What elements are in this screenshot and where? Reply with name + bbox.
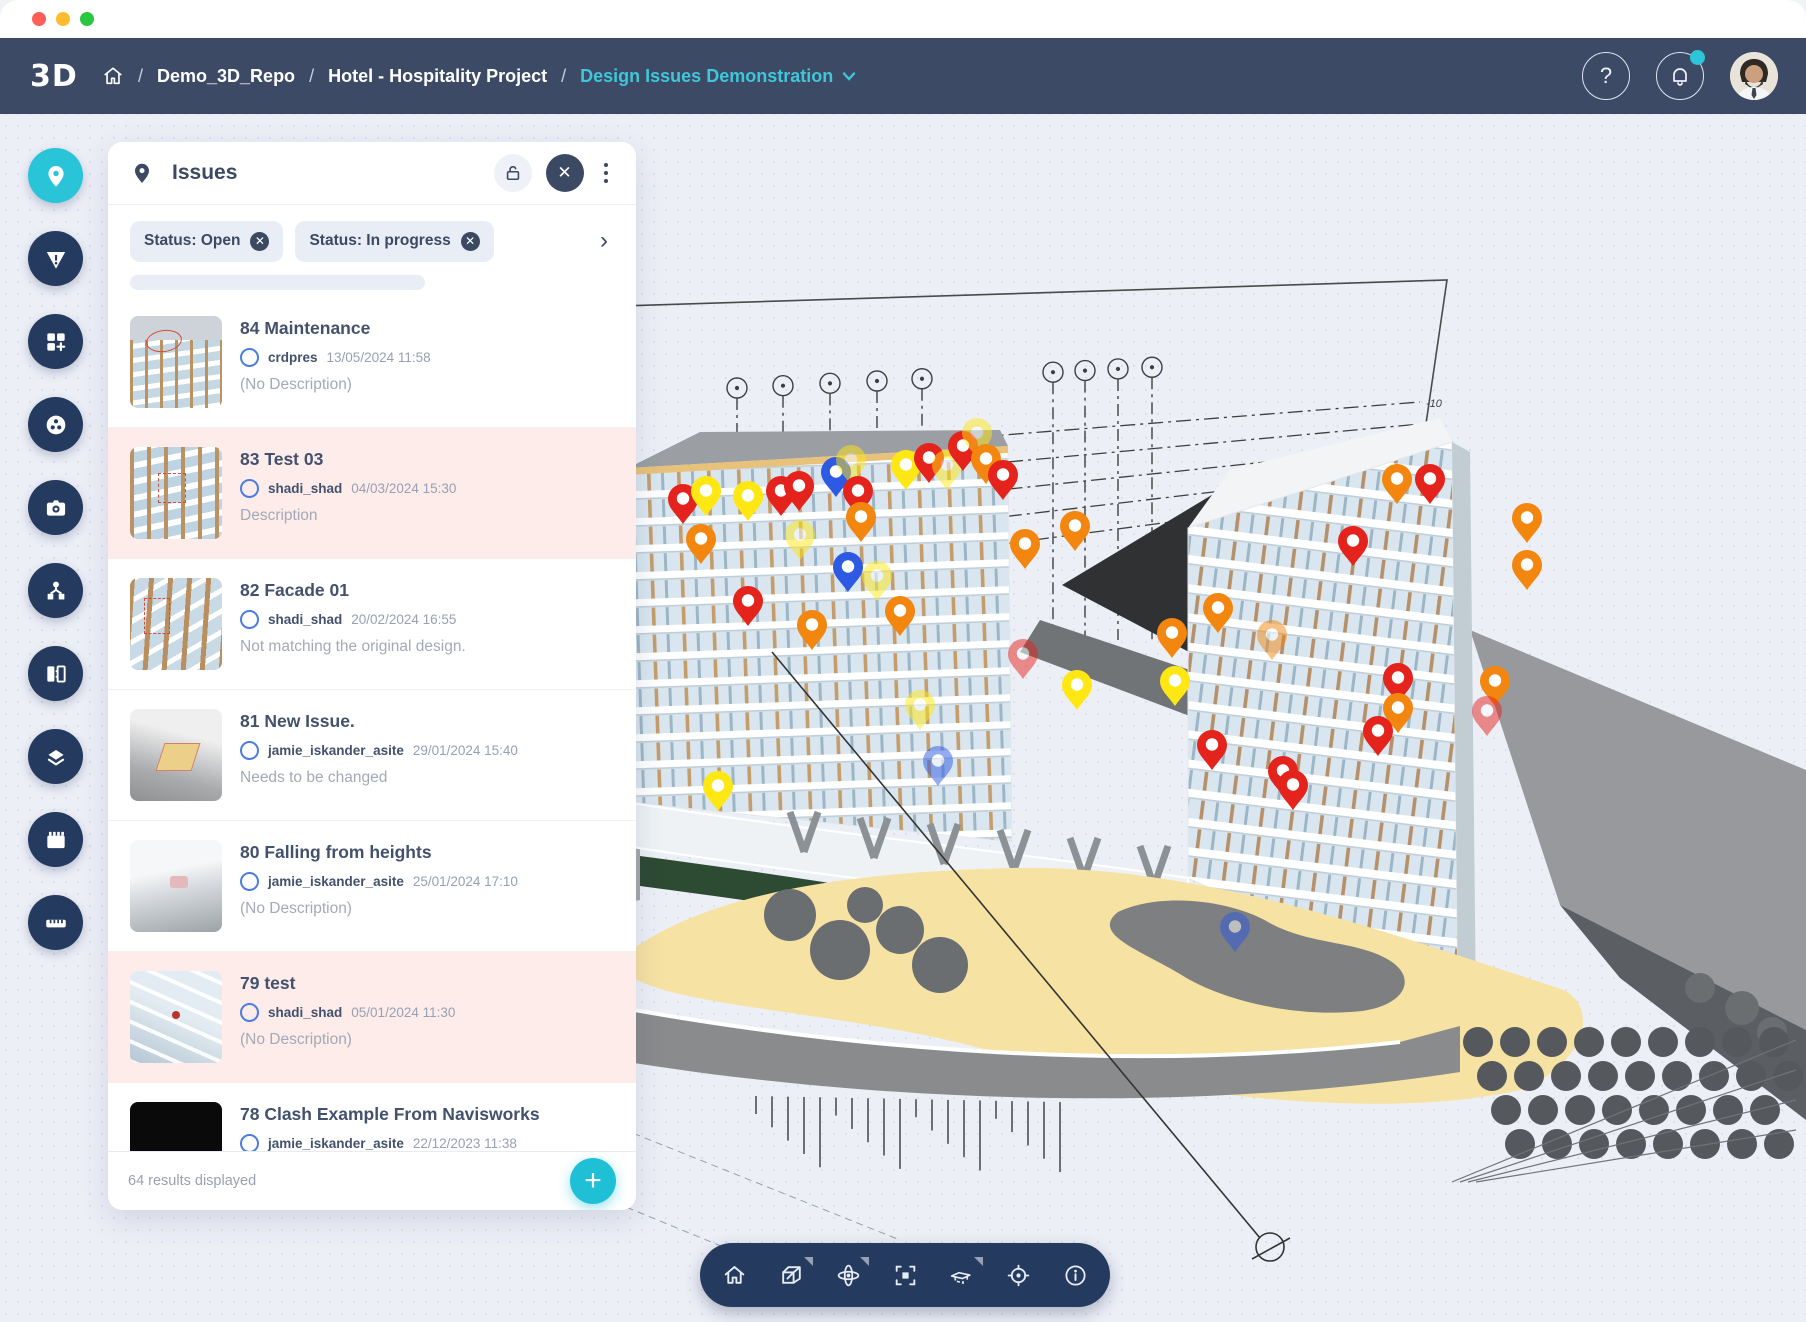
notification-badge — [1690, 50, 1705, 65]
filmstrip-icon — [43, 827, 69, 853]
issue-list-item[interactable]: 81 New Issue. jamie_iskander_asite 29/01… — [108, 690, 636, 821]
issue-date: 20/02/2024 16:55 — [351, 612, 456, 627]
issue-thumbnail — [130, 447, 222, 539]
warning-icon — [43, 246, 69, 272]
sidebar-item-sequences[interactable] — [28, 812, 83, 867]
issue-title: 79 test — [240, 973, 455, 994]
issue-title: 78 Clash Example From Navisworks — [240, 1104, 540, 1125]
issue-thumbnail — [130, 316, 222, 408]
issue-pin-orange[interactable] — [1060, 511, 1090, 551]
close-icon: ✕ — [557, 163, 571, 183]
remove-filter-icon[interactable]: ✕ — [250, 232, 269, 251]
status-ring-icon — [240, 1134, 259, 1151]
viewer-toolbar — [700, 1243, 1110, 1307]
issues-panel-header: Issues ✕ — [108, 142, 636, 205]
issue-list-item[interactable]: 84 Maintenance crdpres 13/05/2024 11:58 … — [108, 297, 636, 428]
pin-icon — [130, 161, 154, 185]
issue-title: 80 Falling from heights — [240, 842, 518, 863]
breadcrumb-separator: / — [561, 66, 566, 87]
status-ring-icon — [240, 610, 259, 629]
info-icon — [1062, 1262, 1089, 1289]
issue-description: Needs to be changed — [240, 769, 518, 787]
issue-title: 81 New Issue. — [240, 711, 518, 732]
issue-date: 25/01/2024 17:10 — [413, 874, 518, 889]
app-window: -10-20-30-40-50 — [0, 0, 1806, 1322]
chevron-down-icon — [841, 68, 857, 84]
viewer-tool-views[interactable] — [770, 1253, 814, 1297]
issue-description: Description — [240, 507, 456, 525]
issue-author: jamie_iskander_asite — [268, 874, 404, 889]
status-ring-icon — [240, 1003, 259, 1022]
issue-pin-orange[interactable] — [1512, 503, 1542, 543]
issue-date: 29/01/2024 15:40 — [413, 743, 518, 758]
sidebar-item-widgets[interactable] — [28, 314, 83, 369]
svg-text:-10: -10 — [1426, 398, 1443, 410]
notifications-button[interactable] — [1656, 52, 1704, 100]
viewer-tool-navigation[interactable] — [826, 1253, 870, 1297]
compare-icon — [43, 661, 69, 687]
add-issue-button[interactable]: + — [570, 1158, 616, 1204]
filter-chip-label: Status: In progress — [309, 232, 450, 250]
sidebar-item-viewpoints[interactable] — [28, 397, 83, 452]
left-tool-rail — [0, 114, 108, 1322]
window-close-button[interactable] — [32, 12, 46, 26]
issue-title: 83 Test 03 — [240, 449, 456, 470]
issue-thumbnail — [130, 971, 222, 1063]
filter-chip-label: Status: Open — [144, 232, 240, 250]
lock-panel-button[interactable] — [494, 154, 532, 192]
submenu-indicator — [860, 1257, 869, 1266]
window-minimize-button[interactable] — [56, 12, 70, 26]
help-icon: ? — [1600, 63, 1612, 89]
issues-panel: Issues ✕ Status: Open✕Status: In progres… — [108, 142, 636, 1210]
sidebar-item-issues[interactable] — [28, 148, 83, 203]
sidebar-item-measure[interactable] — [28, 895, 83, 950]
orbit-icon — [835, 1262, 862, 1289]
issue-date: 13/05/2024 11:58 — [327, 350, 431, 365]
viewer-tool-focus[interactable] — [883, 1253, 927, 1297]
issue-thumbnail — [130, 840, 222, 932]
issue-pin-red[interactable] — [1008, 639, 1038, 679]
issue-description: (No Description) — [240, 376, 431, 394]
cube-icon — [778, 1262, 805, 1289]
sidebar-item-risks[interactable] — [28, 231, 83, 286]
issue-list-item[interactable]: 82 Facade 01 shadi_shad 20/02/2024 16:55… — [108, 559, 636, 690]
ruler-icon — [43, 910, 69, 936]
issue-author: crdpres — [268, 350, 318, 365]
issue-description: Not matching the original design. — [240, 638, 466, 656]
window-maximize-button[interactable] — [80, 12, 94, 26]
breadcrumb-item-repo[interactable]: Demo_3D_Repo — [157, 66, 295, 87]
window-titlebar — [0, 0, 1806, 38]
breadcrumb-separator: / — [309, 66, 314, 87]
issue-list-item[interactable]: 80 Falling from heights jamie_iskander_a… — [108, 821, 636, 952]
viewer-tool-home[interactable] — [713, 1253, 757, 1297]
issue-author: jamie_iskander_asite — [268, 743, 404, 758]
issue-list-item[interactable]: 79 test shadi_shad 05/01/2024 11:30 (No … — [108, 952, 636, 1083]
issue-title: 84 Maintenance — [240, 318, 431, 339]
viewer-tool-info[interactable] — [1053, 1253, 1097, 1297]
widgets-add-icon — [43, 329, 69, 355]
breadcrumb-item-project[interactable]: Hotel - Hospitality Project — [328, 66, 547, 87]
help-button[interactable]: ? — [1582, 52, 1630, 100]
sidebar-item-compare[interactable] — [28, 646, 83, 701]
status-ring-icon — [240, 741, 259, 760]
status-ring-icon — [240, 872, 259, 891]
breadcrumb: / Demo_3D_Repo / Hotel - Hospitality Pro… — [102, 65, 857, 87]
sidebar-item-snapshot[interactable] — [28, 480, 83, 535]
issue-description: (No Description) — [240, 1031, 455, 1049]
close-panel-button[interactable]: ✕ — [546, 154, 584, 192]
issue-pin-red[interactable] — [1472, 696, 1502, 736]
top-navigation-bar: 3D / Demo_3D_Repo / Hotel - Hospitality … — [0, 38, 1806, 114]
issue-list: 84 Maintenance crdpres 13/05/2024 11:58 … — [108, 297, 636, 1151]
results-count: 64 results displayed — [128, 1173, 256, 1189]
issue-list-item[interactable]: 83 Test 03 shadi_shad 04/03/2024 15:30 D… — [108, 428, 636, 559]
breadcrumb-separator: / — [138, 66, 143, 87]
tree-icon — [43, 578, 69, 604]
issue-date: 22/12/2023 11:38 — [413, 1136, 517, 1151]
issues-panel-footer: 64 results displayed + — [108, 1151, 636, 1210]
remove-filter-icon[interactable]: ✕ — [461, 232, 480, 251]
issue-list-item[interactable]: 78 Clash Example From Navisworks jamie_i… — [108, 1083, 636, 1151]
issue-thumbnail — [130, 578, 222, 670]
issue-date: 04/03/2024 15:30 — [351, 481, 456, 496]
status-ring-icon — [240, 348, 259, 367]
issue-pin-orange[interactable] — [1512, 550, 1542, 590]
issue-title: 82 Facade 01 — [240, 580, 466, 601]
filter-chips-row: Status: Open✕Status: In progress✕› — [108, 205, 636, 269]
filter-chip[interactable]: Status: Open✕ — [130, 221, 283, 262]
status-ring-icon — [240, 479, 259, 498]
app-logo: 3D — [30, 59, 102, 94]
pin-icon — [43, 163, 69, 189]
issue-author: shadi_shad — [268, 481, 342, 496]
issue-pin-orange[interactable] — [1157, 618, 1187, 658]
issue-date: 05/01/2024 11:30 — [351, 1005, 455, 1020]
lock-icon — [503, 163, 523, 183]
issue-pin-yellow[interactable] — [1062, 670, 1092, 710]
home-icon[interactable] — [102, 65, 124, 87]
issue-description: (No Description) — [240, 900, 518, 918]
bell-icon — [1668, 64, 1692, 88]
panel-title: Issues — [172, 161, 237, 185]
submenu-indicator — [804, 1257, 813, 1266]
sidebar-item-layers[interactable] — [28, 729, 83, 784]
sidebar-item-model-tree[interactable] — [28, 563, 83, 618]
filter-chip[interactable]: Status: In progress✕ — [295, 221, 493, 262]
camera-icon — [43, 495, 69, 521]
issue-author: shadi_shad — [268, 612, 342, 627]
viewer-tool-coordinates[interactable] — [997, 1253, 1041, 1297]
target-icon — [1005, 1262, 1032, 1289]
user-avatar[interactable] — [1730, 52, 1778, 100]
issue-author: shadi_shad — [268, 1005, 342, 1020]
issue-thumbnail — [130, 709, 222, 801]
layers-icon — [43, 744, 69, 770]
home-icon — [721, 1262, 748, 1289]
chevron-right-icon[interactable]: › — [594, 228, 614, 254]
reel-icon — [43, 412, 69, 438]
frame-icon — [892, 1262, 919, 1289]
chips-scrollbar[interactable] — [108, 269, 636, 297]
clip-icon — [948, 1262, 975, 1289]
breadcrumb-current-view[interactable]: Design Issues Demonstration — [580, 66, 857, 87]
issue-pin-orange[interactable] — [1010, 529, 1040, 569]
viewer-tool-clip[interactable] — [940, 1253, 984, 1297]
issue-author: jamie_iskander_asite — [268, 1136, 404, 1151]
submenu-indicator — [974, 1257, 983, 1266]
panel-menu-button[interactable] — [598, 157, 615, 190]
issue-thumbnail — [130, 1102, 222, 1151]
